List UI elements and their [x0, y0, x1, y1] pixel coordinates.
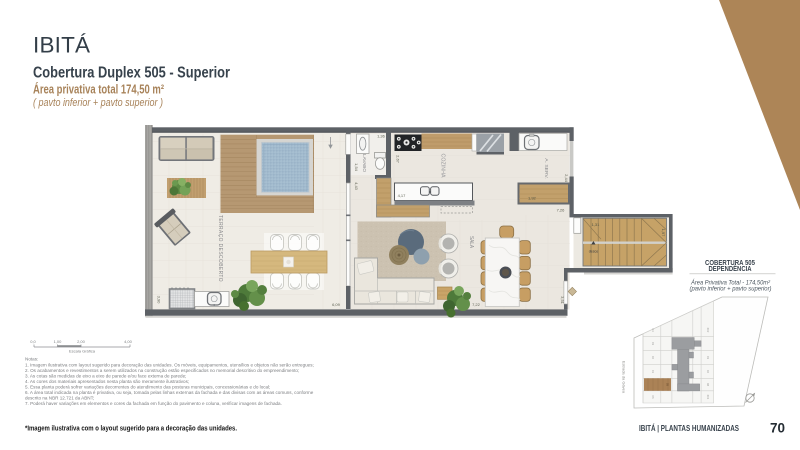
svg-text:7. Poderá haver variações em e: 7. Poderá haver variações em elementos e… — [25, 401, 282, 406]
svg-text:70: 70 — [770, 421, 785, 436]
svg-text:LAVABO: LAVABO — [362, 154, 367, 172]
svg-text:3,51: 3,51 — [560, 296, 565, 305]
svg-text:1,92: 1,92 — [528, 196, 537, 201]
svg-text:2,00: 2,00 — [77, 339, 86, 344]
svg-text:03: 03 — [651, 342, 655, 346]
svg-text:Notas:: Notas: — [25, 357, 38, 362]
svg-text:4,43: 4,43 — [354, 182, 359, 191]
svg-text:7,26: 7,26 — [557, 208, 566, 213]
svg-text:7,22: 7,22 — [472, 302, 481, 307]
svg-text:4,00: 4,00 — [124, 339, 133, 344]
svg-text:A. SERV.: A. SERV. — [543, 158, 549, 179]
svg-text:1,31: 1,31 — [592, 222, 601, 227]
svg-text:0,0: 0,0 — [30, 339, 36, 344]
svg-text:04: 04 — [651, 328, 655, 332]
svg-text:COZINHA: COZINHA — [440, 154, 446, 179]
svg-text:02: 02 — [706, 370, 710, 374]
svg-text:Área privativa total 174,50 m²: Área privativa total 174,50 m² — [33, 82, 164, 97]
svg-text:1. Imagem ilustrativa com layo: 1. Imagem ilustrativa com layout sugerid… — [25, 363, 314, 368]
svg-text:2. Os acabamentos e revestimen: 2. Os acabamentos e revestimentos a sere… — [25, 368, 299, 373]
svg-text:01: 01 — [651, 370, 655, 374]
svg-text:DEPENDÊNCIA: DEPENDÊNCIA — [709, 264, 752, 273]
svg-text:08: 08 — [706, 383, 710, 387]
svg-text:(pavto inferior + pavto superi: (pavto inferior + pavto superior) — [690, 286, 772, 293]
svg-text:*Imagem ilustrativa com o layo: *Imagem ilustrativa com o layout sugerid… — [25, 426, 237, 433]
svg-text:Escala Gráfica: Escala Gráfica — [69, 349, 96, 354]
svg-text:601: 601 — [706, 395, 710, 400]
svg-text:02: 02 — [651, 356, 655, 360]
svg-text:06: 06 — [651, 395, 655, 399]
svg-text:4. As cores dos materiais apre: 4. As cores dos materiais apresentados n… — [25, 379, 189, 384]
svg-text:IBITÁ | PLANTAS HUMANIZADAS: IBITÁ | PLANTAS HUMANIZADAS — [639, 423, 739, 433]
svg-text:Estrada da Gávea: Estrada da Gávea — [622, 361, 627, 394]
svg-text:1,97: 1,97 — [661, 229, 666, 238]
svg-text:05: 05 — [666, 383, 670, 387]
svg-text:6. A área total indicada na pl: 6. A área total indicada na planta é pri… — [25, 390, 314, 395]
svg-text:1,00: 1,00 — [54, 339, 63, 344]
svg-text:2,67: 2,67 — [396, 155, 401, 164]
svg-text:1,36: 1,36 — [377, 134, 386, 139]
svg-text:descrito na NBR 12.721 da ABNT: descrito na NBR 12.721 da ABNT; — [25, 396, 94, 401]
svg-text:( pavto inferior + pavto super: ( pavto inferior + pavto superior ) — [33, 97, 163, 109]
svg-text:03: 03 — [706, 356, 710, 360]
svg-text:5. Essa planta poderá sofrer v: 5. Essa planta poderá sofrer variações d… — [25, 385, 270, 390]
svg-text:3. As cotas são medidas de eix: 3. As cotas são medidas de eixo a eixo d… — [25, 374, 186, 379]
svg-text:6,09: 6,09 — [332, 302, 341, 307]
svg-text:IBITÁ: IBITÁ — [33, 33, 91, 58]
svg-text:1,54: 1,54 — [354, 163, 359, 172]
svg-text:TERRAÇO DESCOBERTO: TERRAÇO DESCOBERTO — [217, 215, 223, 282]
svg-text:602: 602 — [706, 328, 710, 333]
svg-text:Cobertura Duplex 505 - Superio: Cobertura Duplex 505 - Superior — [33, 65, 230, 82]
svg-text:desce: desce — [589, 250, 599, 254]
svg-text:4,17: 4,17 — [398, 193, 407, 198]
svg-text:3,90: 3,90 — [157, 296, 162, 305]
svg-text:SALA: SALA — [468, 236, 474, 249]
svg-text:2,44: 2,44 — [564, 174, 569, 183]
